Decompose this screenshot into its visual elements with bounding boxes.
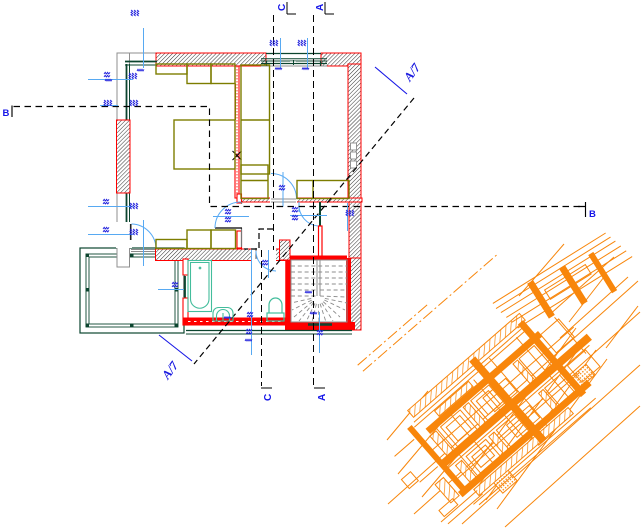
svg-text:C: C [277,4,288,11]
svg-text:A: A [315,4,326,11]
svg-text:C: C [263,394,274,401]
svg-text:A: A [317,394,328,401]
svg-text:B: B [3,108,10,119]
svg-text:B: B [589,209,596,220]
